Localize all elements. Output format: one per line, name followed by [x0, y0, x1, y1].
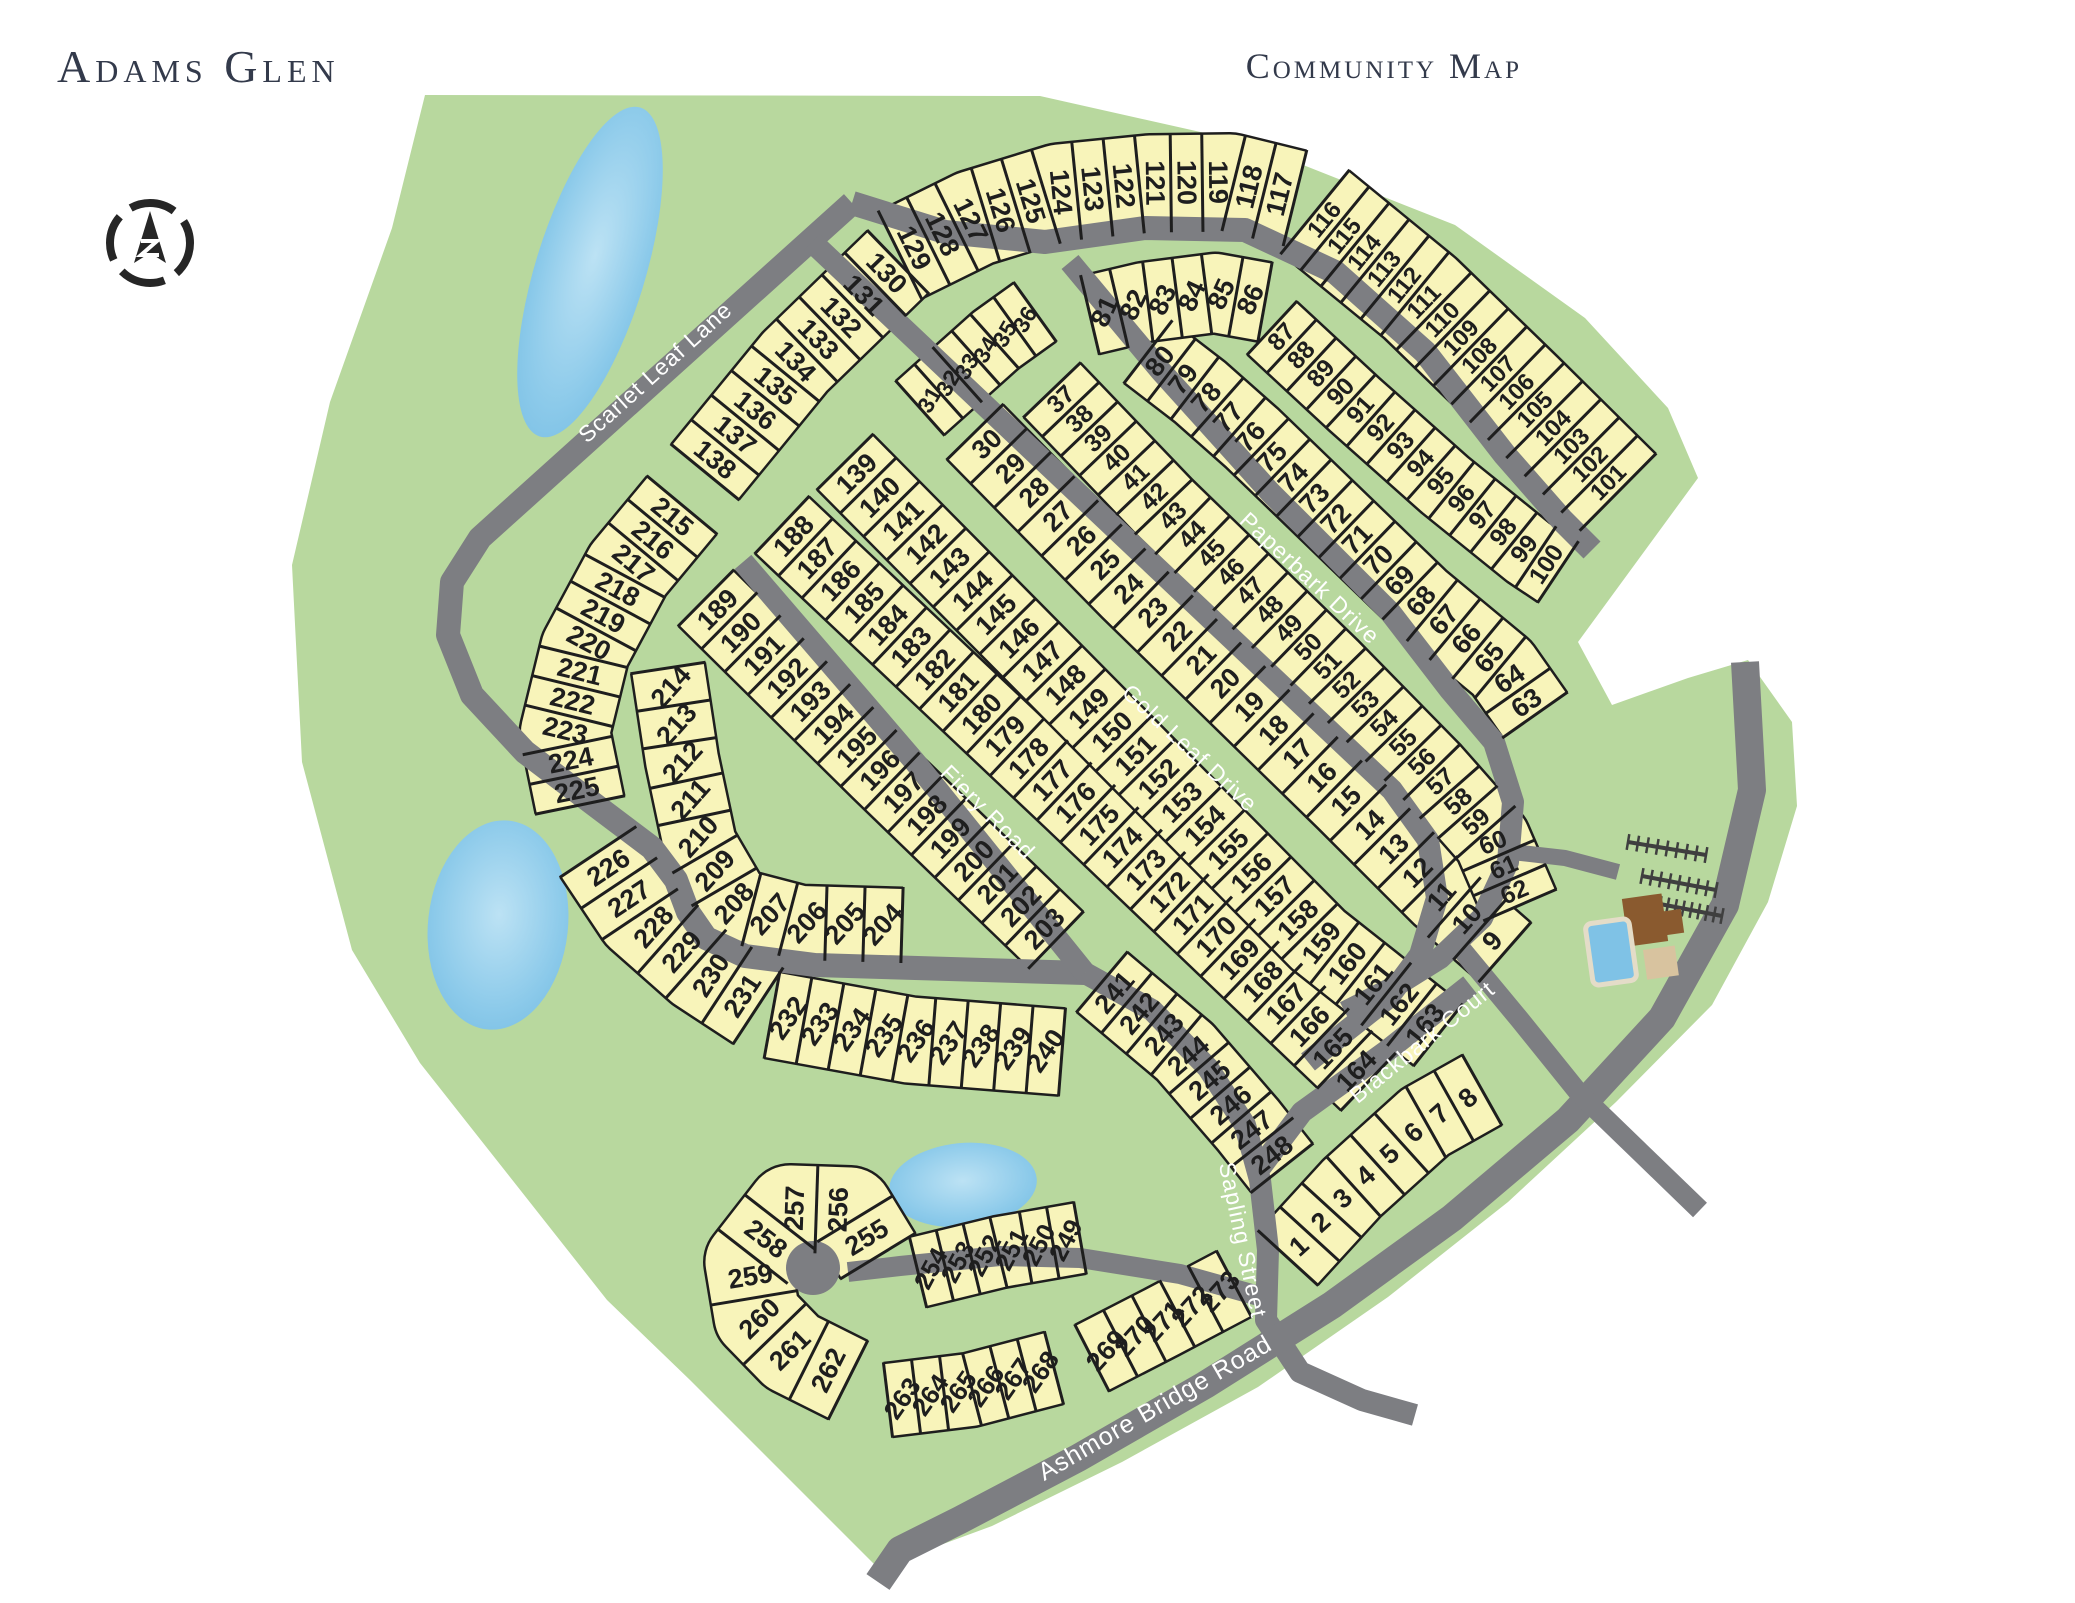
community-map-page: 1291281271261251241231221211201191181171…: [0, 0, 2075, 1603]
lot-number: 120: [1171, 160, 1202, 205]
compass-icon: [110, 203, 190, 283]
lot-number: 121: [1140, 160, 1171, 205]
lot-number: 256: [823, 1187, 854, 1233]
lot-number: 123: [1075, 165, 1109, 213]
lot-number: 119: [1203, 160, 1234, 204]
lot-number: 257: [779, 1185, 810, 1231]
swimming-pool: [1585, 918, 1637, 986]
lot-number: 124: [1044, 168, 1078, 216]
lot-number: 122: [1106, 162, 1140, 210]
patio: [1643, 946, 1679, 980]
page-subtitle: Community Map: [1246, 46, 1522, 86]
page-title: Adams Glen: [57, 41, 340, 92]
community-map: 1291281271261251241231221211201191181171…: [0, 0, 2075, 1603]
